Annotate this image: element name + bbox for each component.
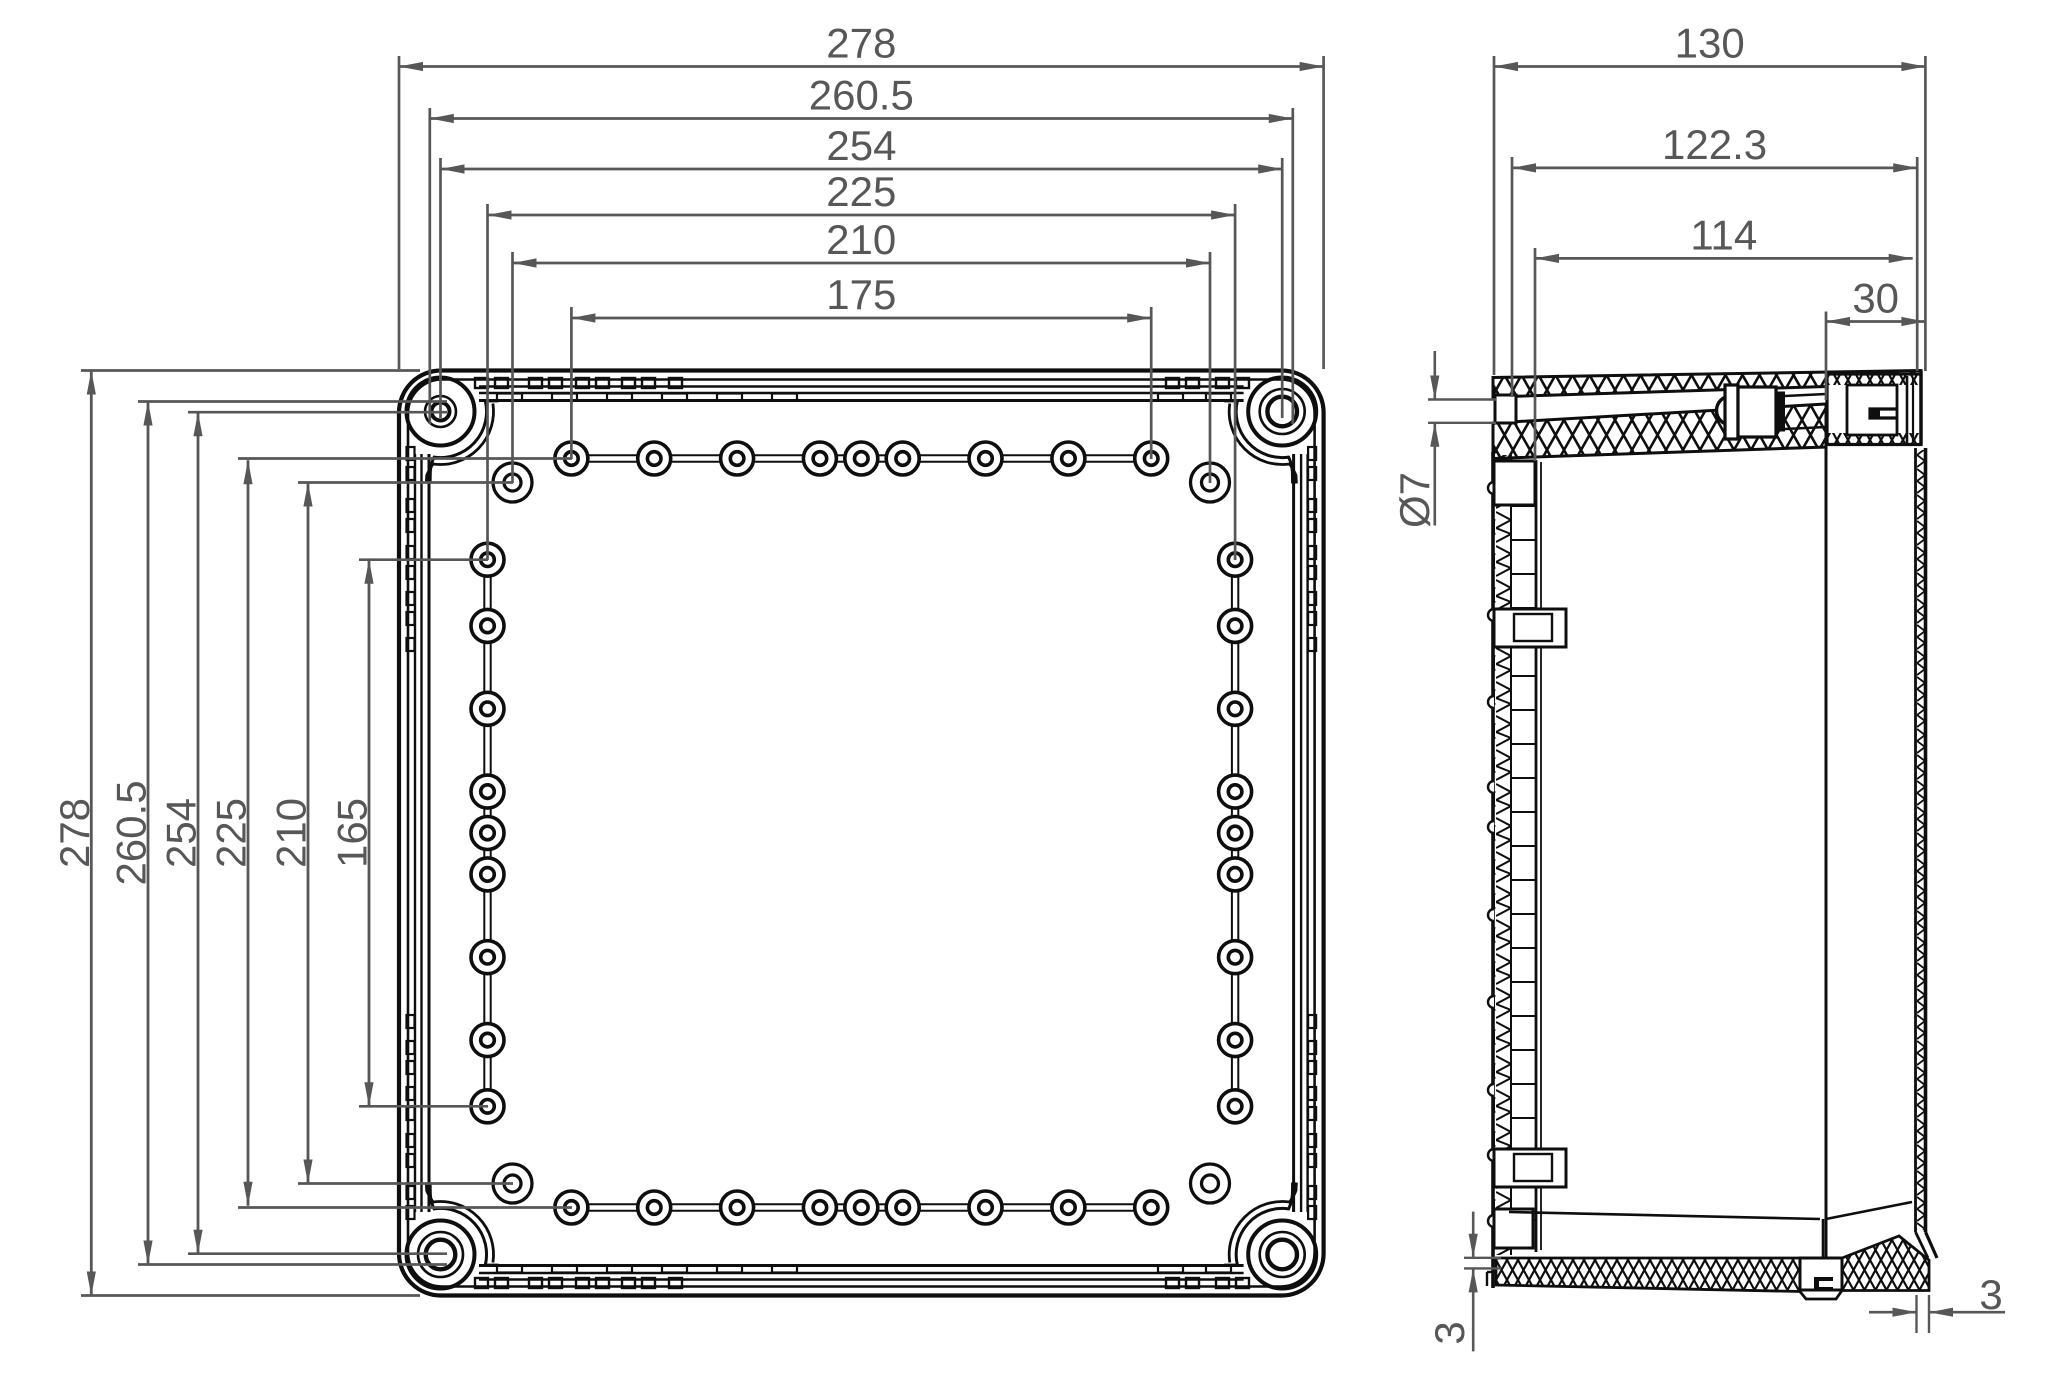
svg-text:122.3: 122.3 — [1662, 121, 1767, 168]
svg-text:254: 254 — [826, 122, 896, 169]
svg-text:225: 225 — [208, 798, 255, 868]
svg-text:278: 278 — [51, 798, 98, 868]
svg-text:210: 210 — [826, 216, 896, 263]
svg-text:225: 225 — [826, 168, 896, 215]
svg-text:278: 278 — [826, 20, 896, 67]
svg-text:3: 3 — [1426, 1321, 1473, 1344]
svg-text:130: 130 — [1675, 20, 1745, 67]
svg-text:3: 3 — [1979, 1271, 2002, 1318]
svg-text:260.5: 260.5 — [108, 780, 155, 885]
svg-text:114: 114 — [1690, 211, 1757, 258]
svg-text:254: 254 — [158, 798, 205, 868]
svg-text:165: 165 — [329, 798, 376, 868]
svg-text:210: 210 — [268, 798, 315, 868]
svg-text:175: 175 — [826, 271, 896, 318]
svg-text:30: 30 — [1852, 275, 1899, 322]
svg-text:Ø7: Ø7 — [1391, 472, 1438, 528]
svg-text:260.5: 260.5 — [809, 72, 914, 119]
